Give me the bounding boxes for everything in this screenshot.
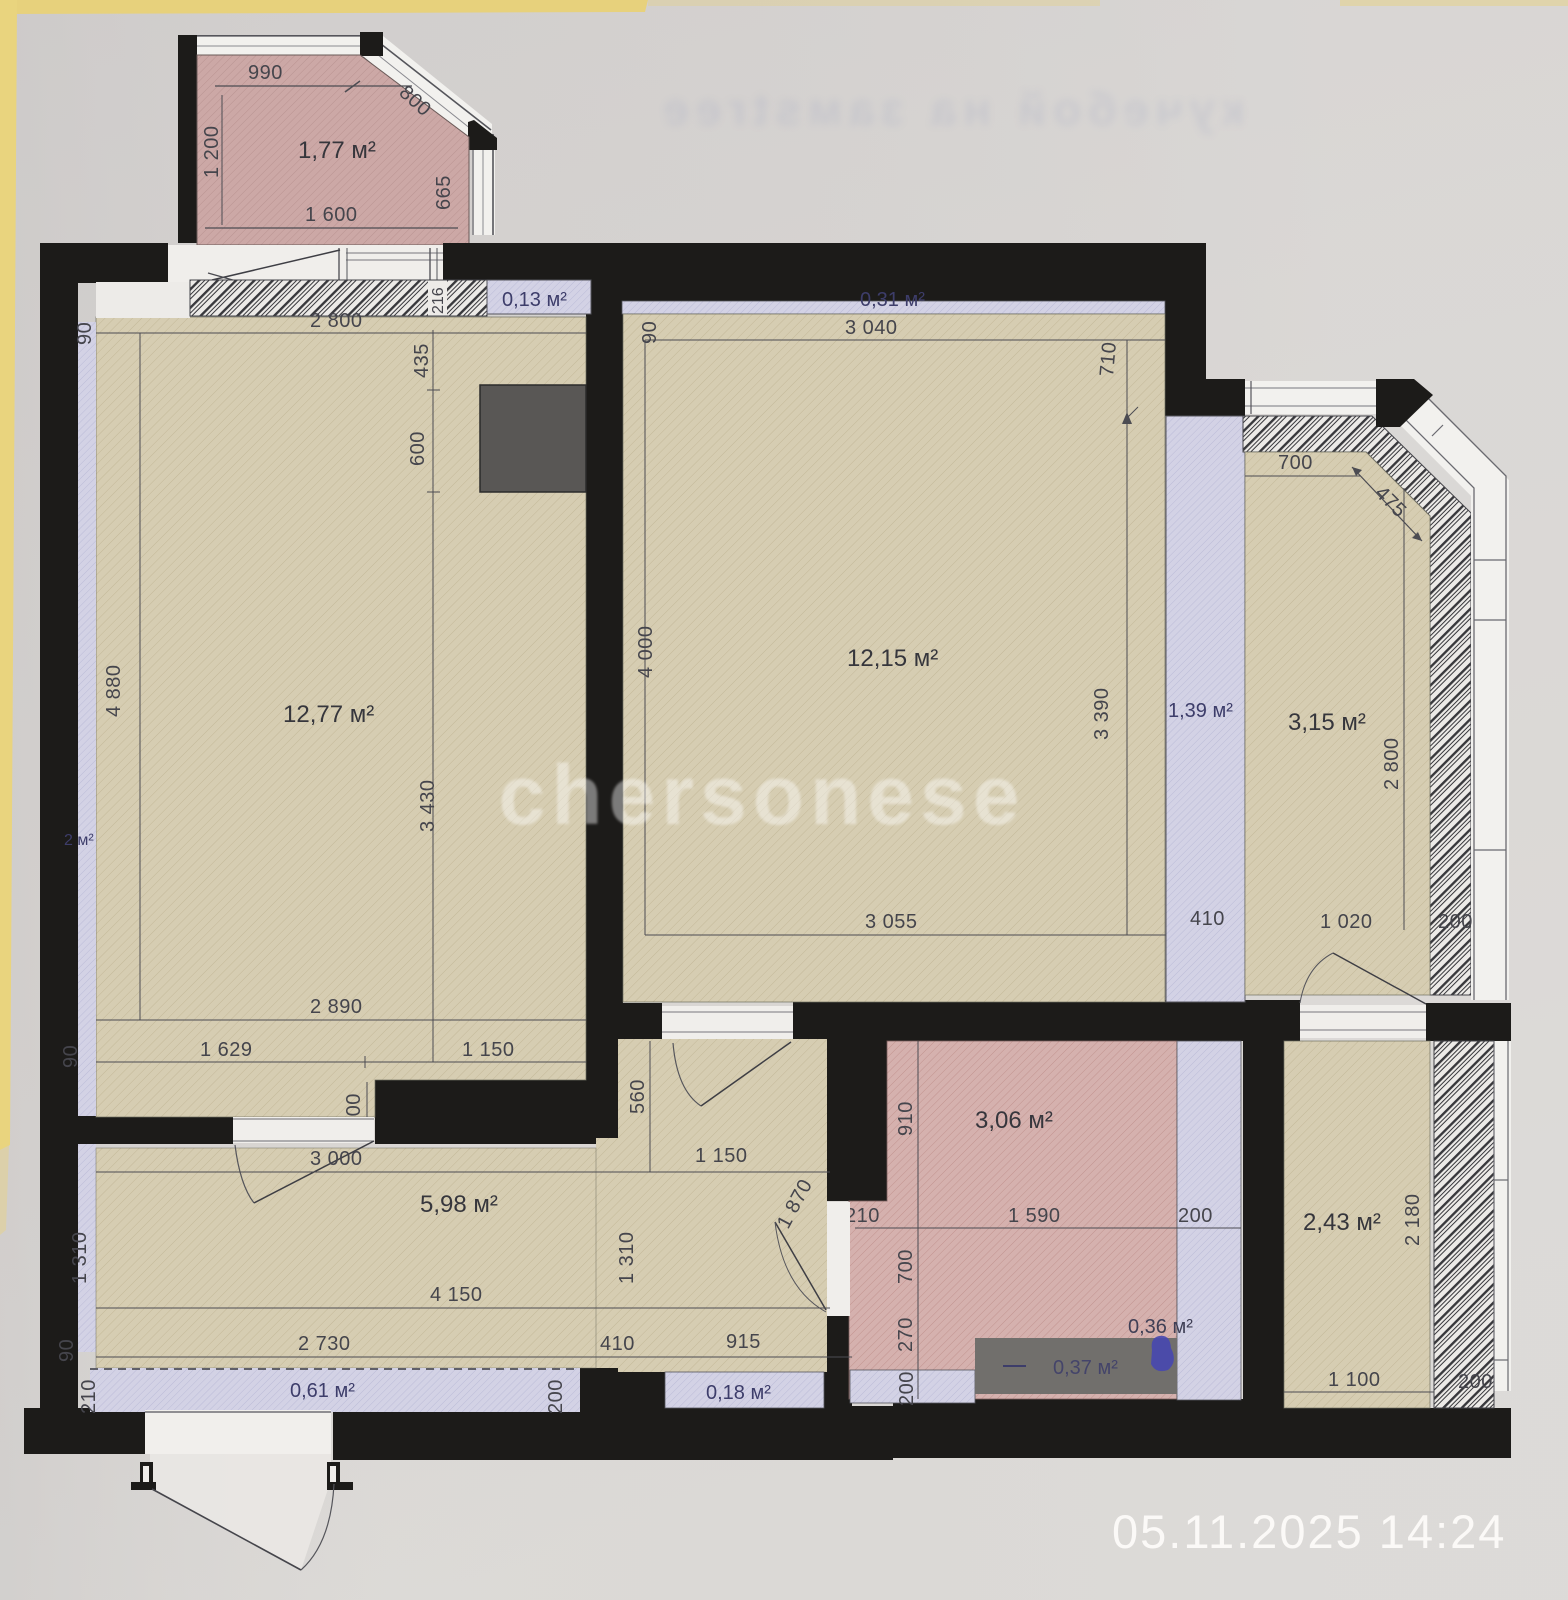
svg-text:2 890: 2 890 bbox=[310, 996, 363, 1018]
svg-text:05.11.2025 14:24: 05.11.2025 14:24 bbox=[1112, 1505, 1506, 1558]
svg-text:3,06 м²: 3,06 м² bbox=[975, 1107, 1053, 1134]
svg-text:700: 700 bbox=[1278, 452, 1313, 474]
svg-text:915: 915 bbox=[726, 1331, 761, 1353]
svg-text:0,18 м²: 0,18 м² bbox=[706, 1382, 771, 1404]
svg-text:665: 665 bbox=[433, 175, 455, 210]
svg-text:2 180: 2 180 bbox=[1402, 1193, 1424, 1246]
svg-text:0,31 м²: 0,31 м² bbox=[860, 289, 925, 311]
svg-text:90: 90 bbox=[60, 1045, 82, 1068]
svg-text:2 м²: 2 м² bbox=[64, 832, 94, 849]
svg-text:210: 210 bbox=[845, 1205, 880, 1227]
svg-text:4 150: 4 150 bbox=[430, 1284, 483, 1306]
svg-text:chersonese: chersonese bbox=[499, 748, 1026, 842]
svg-text:12,77 м²: 12,77 м² bbox=[283, 701, 374, 728]
svg-text:200: 200 bbox=[1458, 1371, 1493, 1393]
svg-text:1 590: 1 590 bbox=[1008, 1205, 1061, 1227]
svg-text:1 020: 1 020 bbox=[1320, 911, 1373, 933]
svg-text:5,98 м²: 5,98 м² bbox=[420, 1191, 498, 1218]
svg-text:1 629: 1 629 bbox=[200, 1039, 253, 1061]
svg-text:90: 90 bbox=[639, 321, 661, 344]
svg-text:200: 200 bbox=[545, 1379, 567, 1414]
svg-text:1,77 м²: 1,77 м² bbox=[298, 137, 376, 164]
svg-text:600: 600 bbox=[407, 431, 429, 466]
svg-text:0,37 м²: 0,37 м² bbox=[1053, 1357, 1118, 1379]
svg-text:1 150: 1 150 bbox=[695, 1145, 748, 1167]
svg-text:910: 910 bbox=[895, 1101, 917, 1136]
svg-text:560: 560 bbox=[627, 1079, 649, 1114]
svg-text:3 390: 3 390 bbox=[1091, 687, 1113, 740]
svg-text:435: 435 bbox=[411, 343, 433, 378]
svg-text:12,15 м²: 12,15 м² bbox=[847, 645, 938, 672]
svg-text:3 040: 3 040 bbox=[845, 317, 898, 339]
svg-text:3 000: 3 000 bbox=[310, 1148, 363, 1170]
svg-text:90: 90 bbox=[74, 322, 96, 345]
svg-text:210: 210 bbox=[78, 1379, 100, 1414]
svg-text:200: 200 bbox=[1178, 1205, 1213, 1227]
svg-text:2 730: 2 730 bbox=[298, 1333, 351, 1355]
svg-text:90: 90 bbox=[56, 1339, 78, 1362]
svg-text:200: 200 bbox=[896, 1371, 918, 1406]
svg-text:200: 200 bbox=[1438, 911, 1473, 933]
svg-text:1 310: 1 310 bbox=[616, 1231, 638, 1284]
svg-text:710: 710 bbox=[1096, 341, 1121, 378]
svg-text:2,43 м²: 2,43 м² bbox=[1303, 1209, 1381, 1236]
svg-text:410: 410 bbox=[600, 1333, 635, 1355]
svg-text:270: 270 bbox=[895, 1317, 917, 1352]
svg-text:216: 216 bbox=[430, 287, 447, 314]
svg-text:0,36 м²: 0,36 м² bbox=[1128, 1316, 1193, 1338]
svg-text:кучебой на замstree: кучебой на замstree bbox=[656, 83, 1245, 135]
svg-text:2 800: 2 800 bbox=[310, 310, 363, 332]
svg-text:0,13 м²: 0,13 м² bbox=[502, 289, 567, 311]
svg-text:1 200: 1 200 bbox=[201, 125, 223, 178]
svg-text:0,61 м²: 0,61 м² bbox=[290, 1380, 355, 1402]
svg-text:1 150: 1 150 bbox=[462, 1039, 515, 1061]
svg-text:3,15 м²: 3,15 м² bbox=[1288, 709, 1366, 736]
svg-text:990: 990 bbox=[248, 62, 283, 84]
svg-text:4 880: 4 880 bbox=[103, 664, 125, 717]
svg-text:1 100: 1 100 bbox=[1328, 1369, 1381, 1391]
svg-text:3 430: 3 430 bbox=[417, 779, 439, 832]
svg-text:3 055: 3 055 bbox=[865, 911, 918, 933]
svg-text:4 000: 4 000 bbox=[635, 625, 657, 678]
svg-text:1 310: 1 310 bbox=[69, 1231, 91, 1284]
svg-text:2 800: 2 800 bbox=[1381, 737, 1403, 790]
svg-text:410: 410 bbox=[1190, 908, 1225, 930]
svg-text:1 600: 1 600 bbox=[305, 204, 358, 226]
svg-text:1,39 м²: 1,39 м² bbox=[1168, 700, 1233, 722]
svg-text:700: 700 bbox=[895, 1249, 917, 1284]
